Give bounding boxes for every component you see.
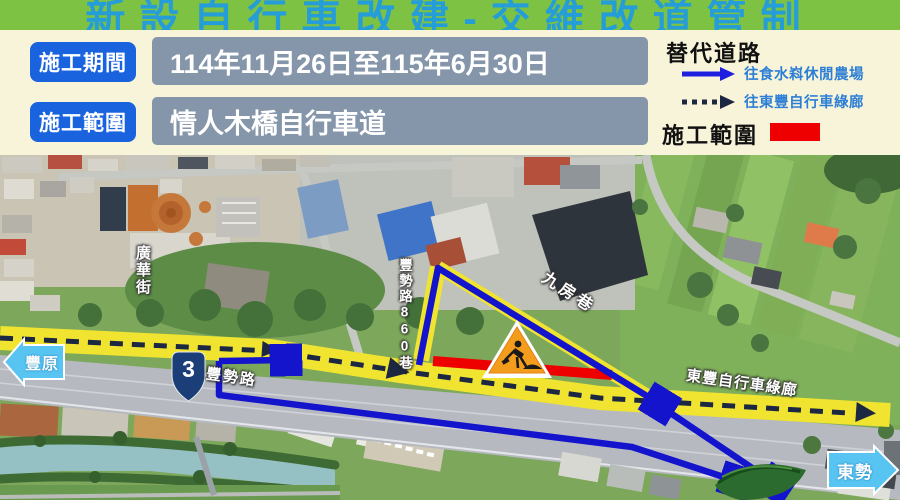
- info-section: 施工期間 114年11月26日至115年6月30日 施工範圍 情人木橋自行車道 …: [0, 30, 900, 155]
- direction-label-fengyuan: 豐原: [25, 350, 59, 374]
- construction-period-tag: 施工期間: [30, 42, 136, 82]
- map-graphic: [0, 155, 900, 500]
- construction-period-value: 114年11月26日至115年6月30日: [152, 37, 648, 85]
- direction-label-dongshi: 東勢: [837, 458, 873, 483]
- title-bar: 新設自行車改建-交維改道管制: [0, 0, 900, 30]
- construction-scope-tag: 施工範圍: [30, 102, 136, 142]
- solid-arrow-icon: [680, 66, 736, 82]
- detour-map: 廣華街 豐勢路860巷 九房巷 豐勢路 東豐自行車綠廊 豐原 東勢 3: [0, 155, 900, 500]
- construction-scope-value: 情人木橋自行車道: [152, 97, 648, 145]
- highway-3-shield-number: 3: [172, 356, 205, 383]
- legend-item-solid-route: 往食水嵙休閒農場: [680, 63, 864, 84]
- scope-color-swatch: [770, 123, 820, 141]
- page-title: 新設自行車改建-交維改道管制: [0, 0, 900, 30]
- construction-notice-poster: 新設自行車改建-交維改道管制 施工期間 114年11月26日至115年6月30日…: [0, 0, 900, 500]
- dotted-arrow-icon: [680, 94, 736, 110]
- legend-solid-label: 往食水嵙休閒農場: [744, 63, 864, 84]
- legend-dotted-label: 往東豐自行車綠廊: [744, 91, 864, 112]
- legend-scope-label: 施工範圍: [662, 118, 758, 150]
- legend-item-dotted-route: 往東豐自行車綠廊: [680, 91, 864, 112]
- street-label-guanghua: 廣華街: [132, 245, 153, 296]
- street-label-fengshi-860: 豐勢路860巷: [394, 258, 414, 383]
